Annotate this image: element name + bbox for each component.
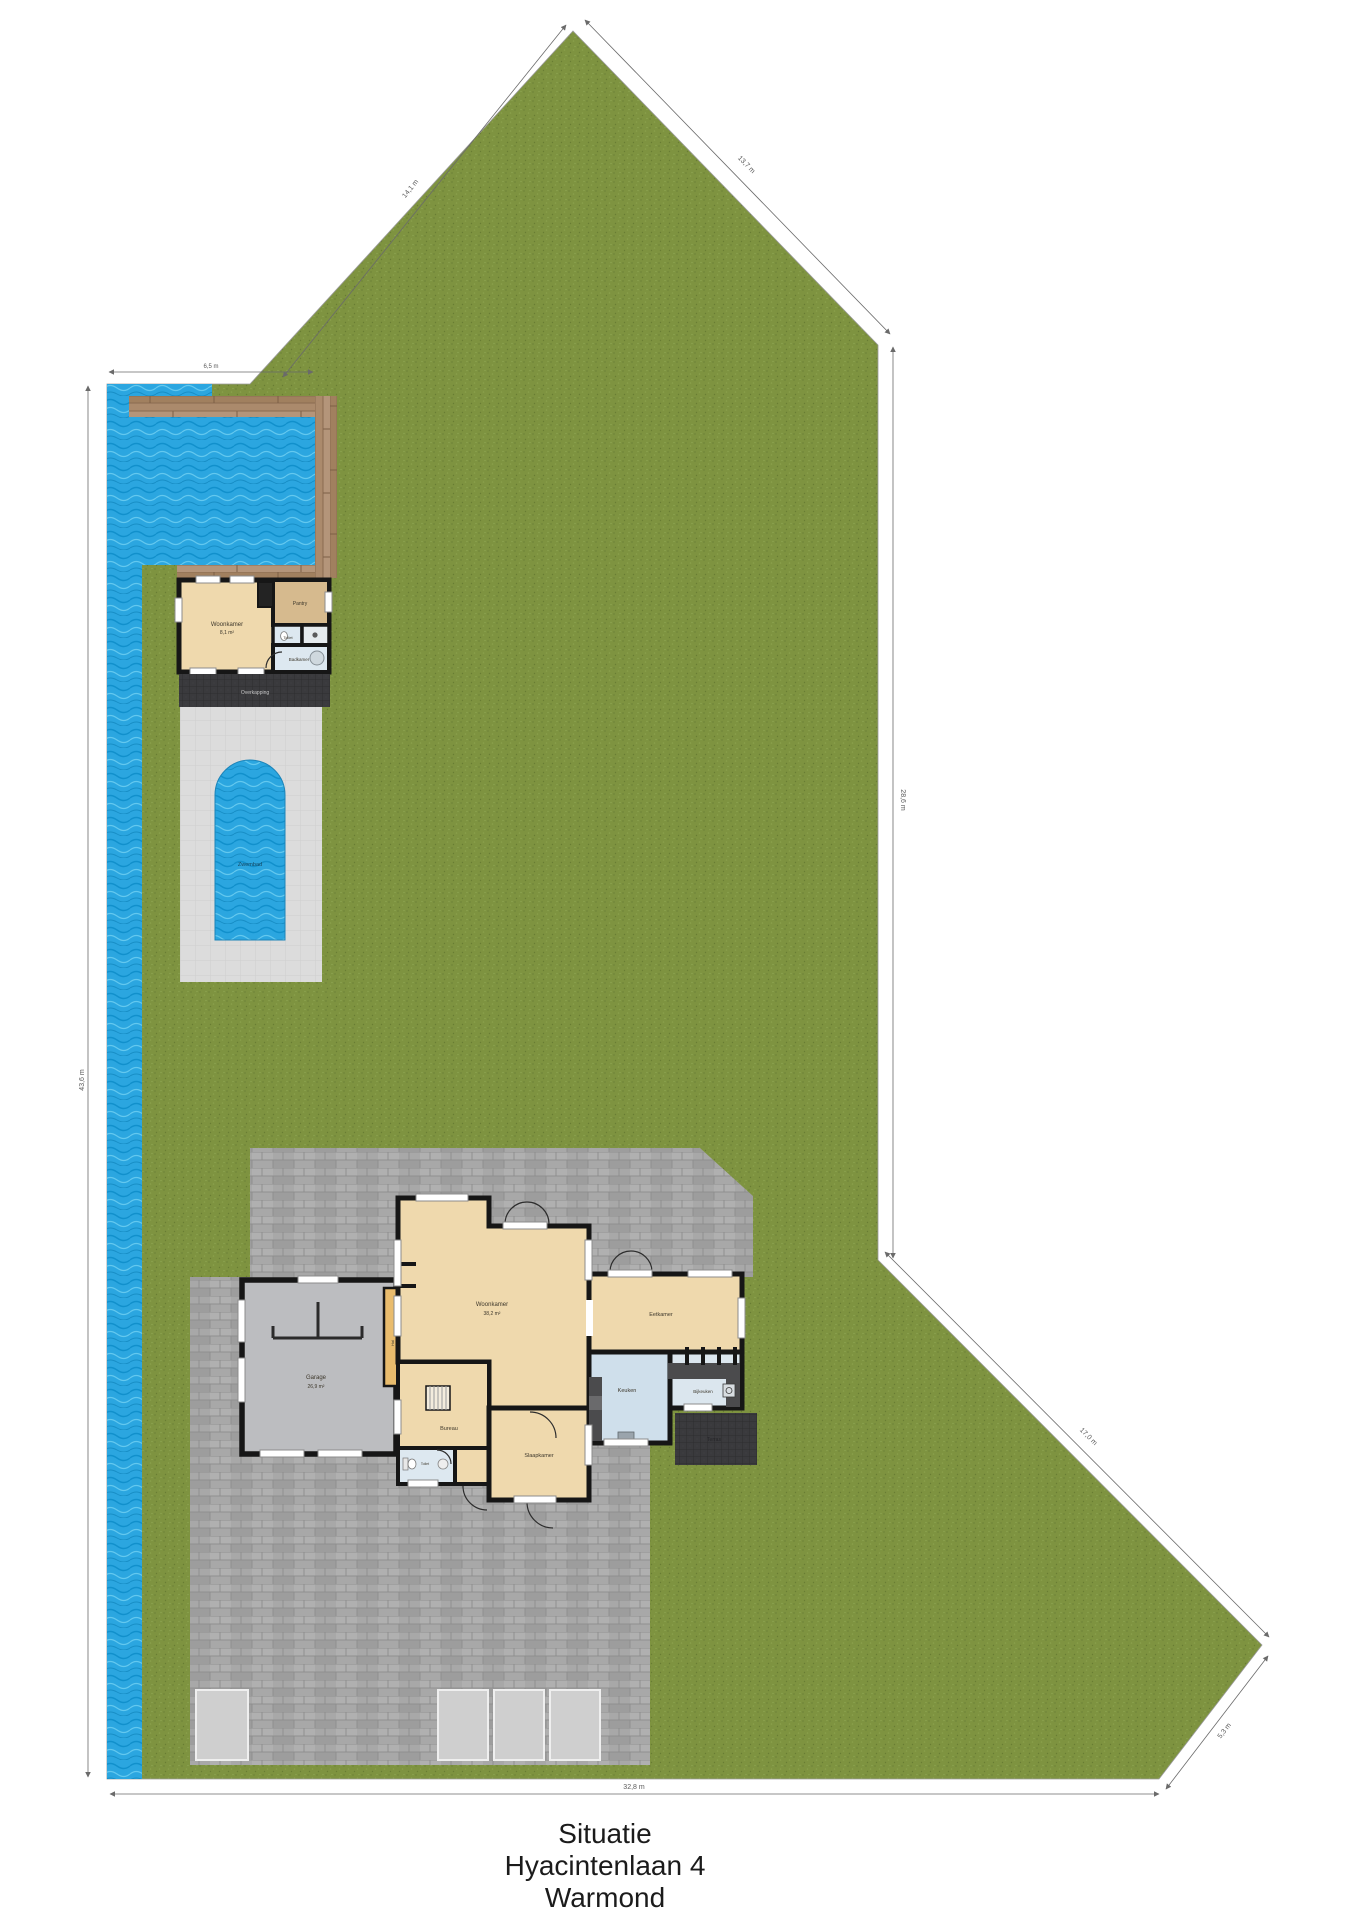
site-plan-page: 32,8 m 43,6 m 28,6 m 13,7 m 14,1 m 17,0 … <box>0 0 1358 1920</box>
label-scullery: Bijkeuken <box>693 1389 713 1394</box>
label-outbuilding-living: Woonkamer <box>211 622 243 628</box>
caption-line1: Situatie <box>558 1818 651 1849</box>
dim-left: 43,6 m <box>79 1069 86 1091</box>
deck-band-right <box>315 396 337 578</box>
dim-quay: 6,5 m <box>203 364 218 370</box>
stove-icon <box>589 1396 602 1410</box>
shower-tray-icon <box>310 651 324 665</box>
label-terrace: Terras <box>707 1437 721 1443</box>
caption-line3: Warmond <box>545 1882 665 1913</box>
label-hall: Hal <box>390 1340 395 1346</box>
label-bedroom: Slaapkamer <box>524 1453 554 1459</box>
label-canopy: Overkapping <box>241 690 270 696</box>
dim-ne: 13,7 m <box>736 155 756 175</box>
label-dining: Eetkamer <box>649 1312 673 1318</box>
label-living-area: 38,2 m² <box>484 1311 501 1317</box>
label-pool: Zwembad <box>238 862 262 868</box>
dim-bottom: 32,8 m <box>623 1784 645 1791</box>
label-garage-area: 26,9 m² <box>308 1384 325 1390</box>
washer-icon <box>723 1384 735 1397</box>
label-house-toilet: Toilet <box>421 1462 429 1466</box>
deck-band-top <box>129 396 337 417</box>
label-kitchen: Keuken <box>618 1388 637 1394</box>
label-living: Woonkamer <box>476 1302 508 1308</box>
swimming-pool <box>215 760 285 940</box>
label-outbuilding-living-area: 8,1 m² <box>220 630 235 636</box>
label-pantry: Pantry <box>293 601 308 607</box>
label-office: Bureau <box>440 1426 458 1432</box>
label-bathroom: Badkamer <box>289 657 310 662</box>
label-outbuilding-toilet: Toilet <box>283 635 293 640</box>
dim-corner: 5,3 m <box>1217 1722 1233 1740</box>
label-garage: Garage <box>306 1375 327 1381</box>
caption-line2: Hyacintenlaan 4 <box>505 1850 706 1881</box>
dim-right: 28,6 m <box>899 789 906 811</box>
site-plan-drawing: 32,8 m 43,6 m 28,6 m 13,7 m 14,1 m 17,0 … <box>0 0 1358 1920</box>
dim-se: 17,0 m <box>1078 1427 1098 1447</box>
shower-drain-icon <box>312 632 317 637</box>
rear-hall <box>455 1448 489 1484</box>
dim-nw: 14,1 m <box>401 178 420 199</box>
title-block: Situatie Hyacintenlaan 4 Warmond <box>505 1818 706 1913</box>
outbuilding-closet-niche <box>258 582 273 607</box>
garage-building <box>238 1276 396 1457</box>
